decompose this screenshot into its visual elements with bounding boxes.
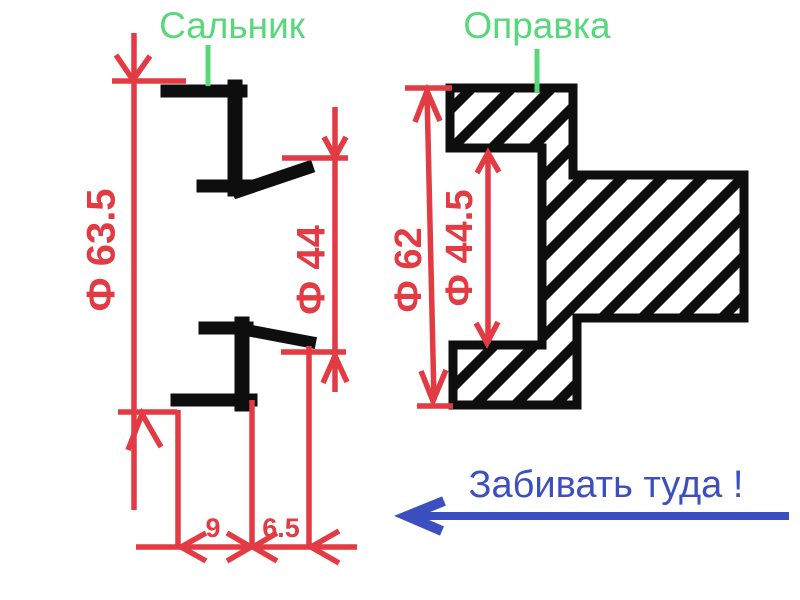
seal-width-label: 9 (205, 513, 220, 543)
seal-lip-depth-label: 6.5 (262, 513, 300, 543)
seal-bore-diameter-label: Ф 44 (290, 224, 334, 315)
mandrel-outer-diameter-label: Ф 62 (388, 227, 430, 312)
seal-bottom-lip (241, 329, 310, 342)
mandrel-pilot-diameter-dimension: Ф 44.5 (439, 152, 499, 343)
seal-label: Сальник (159, 5, 306, 46)
drive-direction-label: Забивать туда ! (469, 464, 744, 506)
seal-outer-diameter-dimension: Ф 63.5 (80, 33, 186, 510)
seal-bore-diameter-dimension: Ф 44 (281, 107, 348, 392)
mandrel-drawing (450, 88, 744, 405)
sketch-page: Ф 63.5 Ф 44 9 6.5 Ф 62 (0, 0, 800, 600)
technical-sketch-canvas: Ф 63.5 Ф 44 9 6.5 Ф 62 (0, 0, 800, 600)
mandrel-label: Оправка (463, 5, 611, 46)
seal-outer-diameter-label: Ф 63.5 (80, 188, 124, 311)
drive-direction-annotation: Забивать туда ! (407, 464, 789, 531)
mandrel-pilot-diameter-label: Ф 44.5 (439, 190, 481, 307)
part-labels: Сальник Оправка (159, 5, 611, 93)
seal-drawing (167, 87, 310, 404)
mandrel-cross-section (450, 88, 744, 405)
